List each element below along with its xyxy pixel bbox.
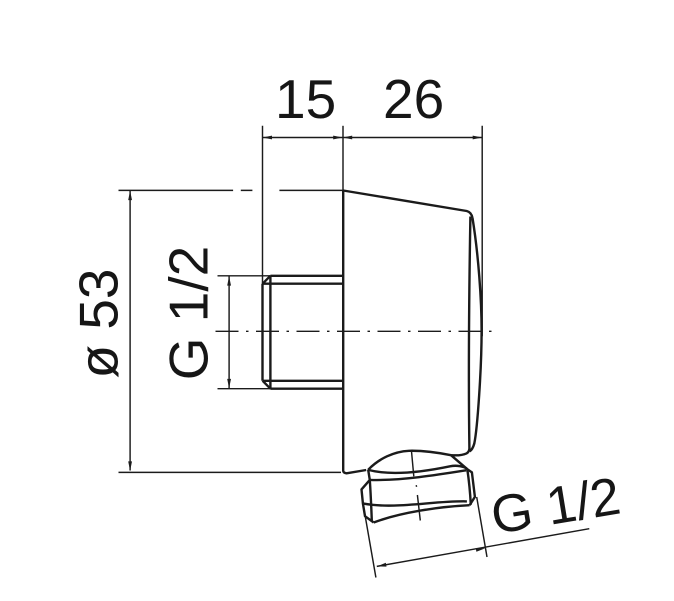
svg-text:15: 15 [275,68,336,130]
svg-text:G 1/2: G 1/2 [158,246,220,381]
svg-text:ø 53: ø 53 [68,268,130,378]
svg-text:G 1/2: G 1/2 [487,467,624,546]
svg-text:26: 26 [383,68,444,130]
